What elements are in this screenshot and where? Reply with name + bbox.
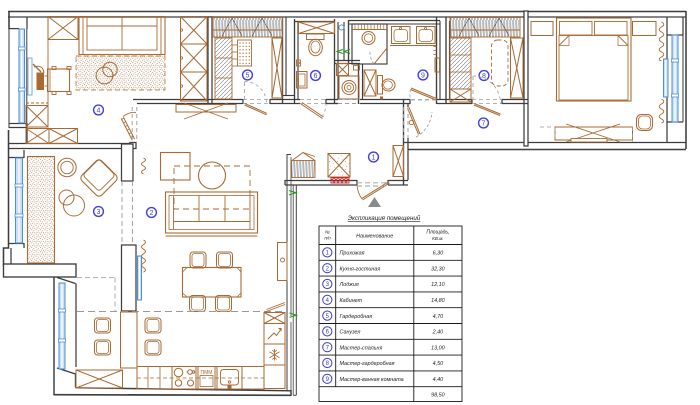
svg-text:п/п: п/п	[324, 236, 331, 241]
svg-text:№: №	[325, 230, 330, 235]
svg-text:3: 3	[326, 282, 330, 288]
svg-text:4: 4	[326, 298, 330, 304]
svg-text:6: 6	[326, 330, 330, 336]
svg-text:Кухня-гостиная: Кухня-гостиная	[340, 266, 381, 272]
svg-text:4: 4	[97, 107, 101, 114]
svg-text:2: 2	[150, 210, 154, 217]
svg-text:98,50: 98,50	[431, 393, 445, 399]
svg-text:Прихожая: Прихожая	[340, 251, 365, 257]
svg-text:3: 3	[97, 209, 101, 216]
svg-text:2: 2	[326, 266, 330, 272]
svg-text:5: 5	[326, 314, 330, 320]
svg-text:Площадь,: Площадь,	[426, 230, 449, 236]
svg-text:Санузел: Санузел	[340, 330, 361, 336]
svg-text:4,70: 4,70	[433, 314, 444, 320]
svg-text:6: 6	[314, 73, 318, 80]
svg-text:1: 1	[372, 154, 376, 161]
svg-text:9: 9	[326, 377, 330, 383]
svg-text:Мастер-спальня: Мастер-спальня	[340, 345, 383, 351]
svg-text:Лоджия: Лоджия	[339, 282, 359, 288]
svg-text:13,00: 13,00	[431, 345, 445, 351]
svg-text:Гардеробная: Гардеробная	[340, 314, 373, 320]
svg-text:Мастер-ванная комната: Мастер-ванная комната	[340, 377, 404, 383]
svg-text:2,40: 2,40	[432, 330, 444, 336]
svg-text:9: 9	[421, 72, 425, 79]
svg-text:Наименование: Наименование	[356, 234, 393, 240]
svg-text:12,10: 12,10	[431, 282, 445, 288]
svg-text:32,30: 32,30	[431, 266, 445, 272]
svg-text:8: 8	[326, 361, 330, 367]
svg-text:1: 1	[326, 251, 330, 257]
svg-text:Кабинет: Кабинет	[340, 298, 363, 304]
svg-text:6,30: 6,30	[433, 251, 444, 257]
svg-text:4,40: 4,40	[433, 377, 444, 383]
svg-text:КВ.м.: КВ.м.	[432, 236, 443, 241]
svg-text:5: 5	[246, 72, 250, 79]
svg-text:Мастер-гардеробная: Мастер-гардеробная	[340, 361, 395, 367]
svg-text:Экспликация помещений: Экспликация помещений	[348, 215, 421, 222]
svg-text:4,50: 4,50	[433, 361, 444, 367]
svg-text:7: 7	[482, 120, 486, 127]
svg-text:7: 7	[326, 345, 330, 351]
svg-text:14,80: 14,80	[431, 298, 445, 304]
